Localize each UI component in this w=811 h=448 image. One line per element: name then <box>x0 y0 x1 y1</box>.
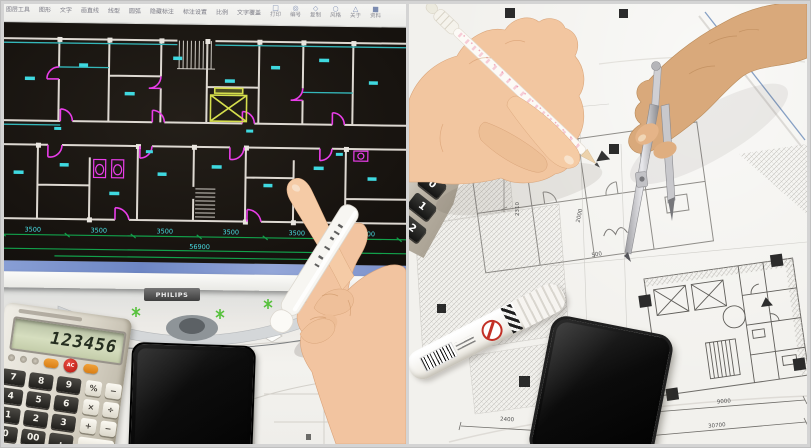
photo-right-blueprint-work: 9000 30700 2400 2310 2000 500 0 0 1 2 <box>409 4 807 444</box>
photo-left-cad-workstation: 图层工具 图形 文字 画直线 线型 圆弧 隐藏标注 标注设置 比例 文字覆盖 □… <box>4 4 406 444</box>
photo-collage: 图层工具 图形 文字 画直线 线型 圆弧 隐藏标注 标注设置 比例 文字覆盖 □… <box>0 0 811 448</box>
pointing-hand-with-pen <box>4 4 406 444</box>
drafting-hands <box>409 4 807 444</box>
